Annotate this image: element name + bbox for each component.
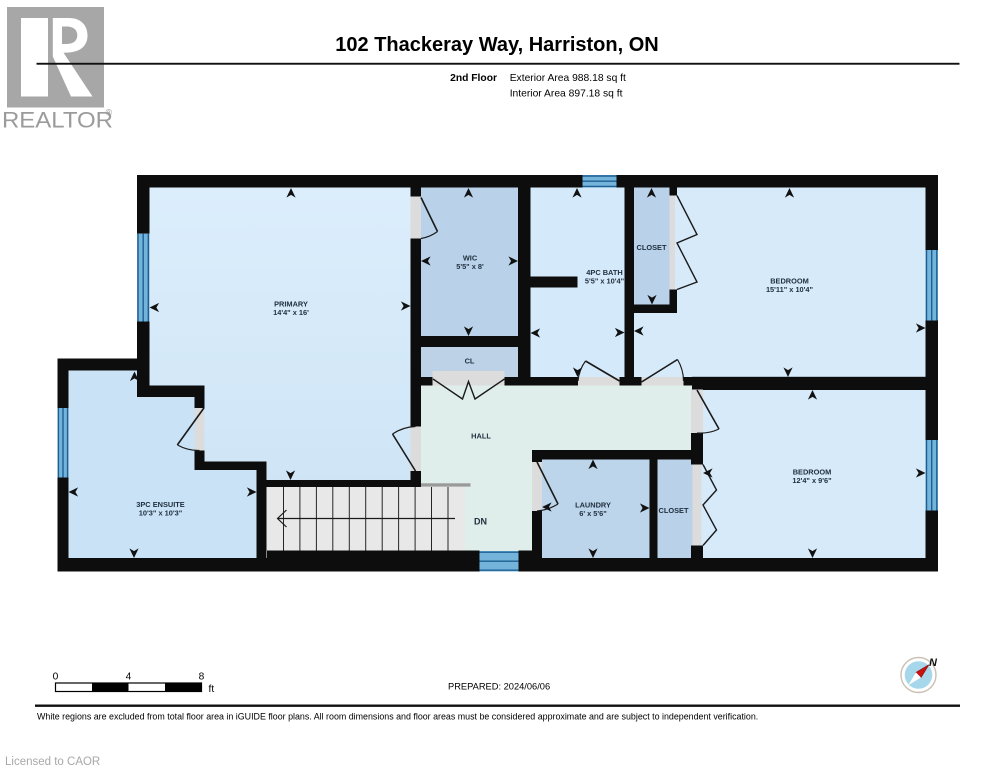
svg-text:N: N [929, 657, 938, 669]
svg-text:CL: CL [465, 357, 475, 366]
svg-text:6' x 5'6": 6' x 5'6" [579, 509, 607, 518]
svg-text:DN: DN [474, 517, 487, 527]
svg-text:12'4" x 9'6": 12'4" x 9'6" [792, 476, 832, 485]
svg-text:2nd Floor: 2nd Floor [450, 73, 497, 84]
svg-text:PREPARED: 2024/06/06: PREPARED: 2024/06/06 [448, 682, 550, 692]
svg-text:®: ® [106, 108, 113, 118]
svg-text:White regions are excluded fro: White regions are excluded from total fl… [37, 712, 758, 722]
svg-text:CLOSET: CLOSET [659, 506, 689, 515]
svg-text:REALTOR: REALTOR [2, 108, 113, 133]
svg-text:10'3" x 10'3": 10'3" x 10'3" [139, 509, 183, 518]
svg-text:CLOSET: CLOSET [637, 243, 667, 252]
svg-text:ft: ft [209, 684, 215, 695]
svg-text:102 Thackeray Way, Harriston,: 102 Thackeray Way, Harriston, ON [335, 34, 658, 56]
svg-text:Interior Area 897.18 sq ft: Interior Area 897.18 sq ft [510, 88, 623, 99]
svg-text:4: 4 [126, 671, 132, 682]
svg-text:HALL: HALL [471, 432, 491, 441]
svg-text:Exterior Area 988.18 sq ft: Exterior Area 988.18 sq ft [510, 73, 626, 84]
svg-text:Licensed to CAOR: Licensed to CAOR [5, 756, 100, 768]
svg-text:0: 0 [53, 671, 59, 682]
svg-text:8: 8 [199, 671, 205, 682]
svg-text:5'5" x 8': 5'5" x 8' [456, 262, 484, 271]
svg-text:15'11" x 10'4": 15'11" x 10'4" [766, 285, 814, 294]
svg-text:14'4" x 16': 14'4" x 16' [273, 308, 309, 317]
svg-text:5'5" x 10'4": 5'5" x 10'4" [585, 277, 625, 286]
